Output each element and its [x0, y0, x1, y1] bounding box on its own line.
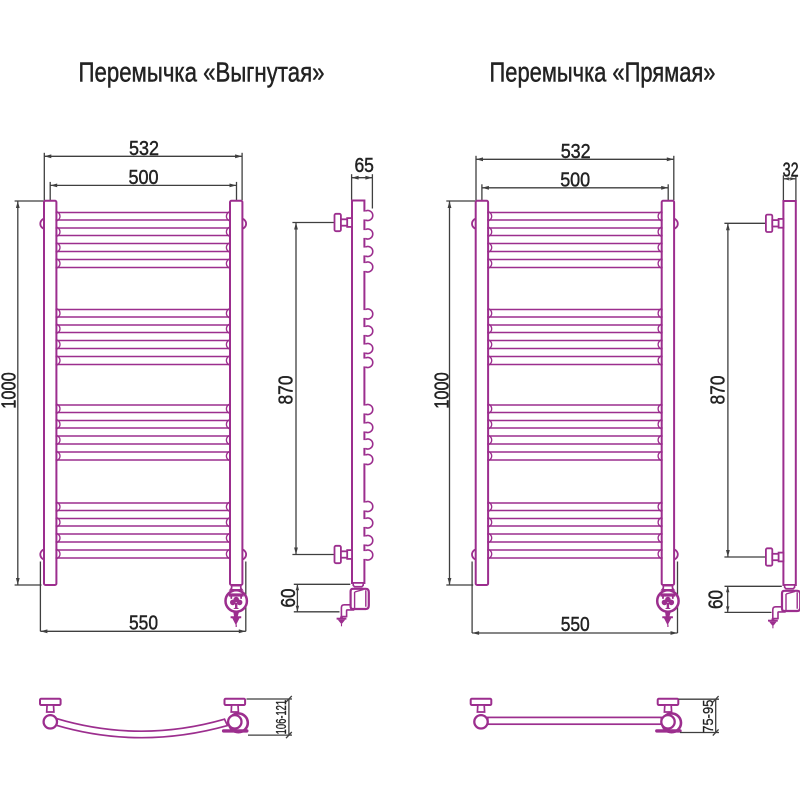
svg-text:550: 550 — [129, 612, 158, 635]
svg-text:870: 870 — [707, 376, 730, 405]
svg-text:Перемычка «Прямая»: Перемычка «Прямая» — [490, 56, 716, 87]
svg-text:65: 65 — [354, 154, 374, 177]
svg-text:1000: 1000 — [431, 372, 454, 409]
svg-text:532: 532 — [561, 140, 591, 163]
svg-text:Перемычка «Выгнутая»: Перемычка «Выгнутая» — [79, 56, 325, 87]
svg-text:106-121: 106-121 — [274, 700, 290, 735]
svg-text:32: 32 — [783, 158, 799, 181]
svg-text:500: 500 — [129, 166, 159, 189]
svg-text:60: 60 — [277, 589, 300, 608]
svg-text:75-95: 75-95 — [701, 700, 717, 733]
svg-text:550: 550 — [561, 613, 590, 636]
svg-text:500: 500 — [560, 168, 590, 191]
svg-text:870: 870 — [275, 376, 298, 405]
svg-text:532: 532 — [129, 137, 159, 160]
svg-text:1000: 1000 — [0, 372, 20, 409]
svg-text:60: 60 — [704, 590, 727, 609]
